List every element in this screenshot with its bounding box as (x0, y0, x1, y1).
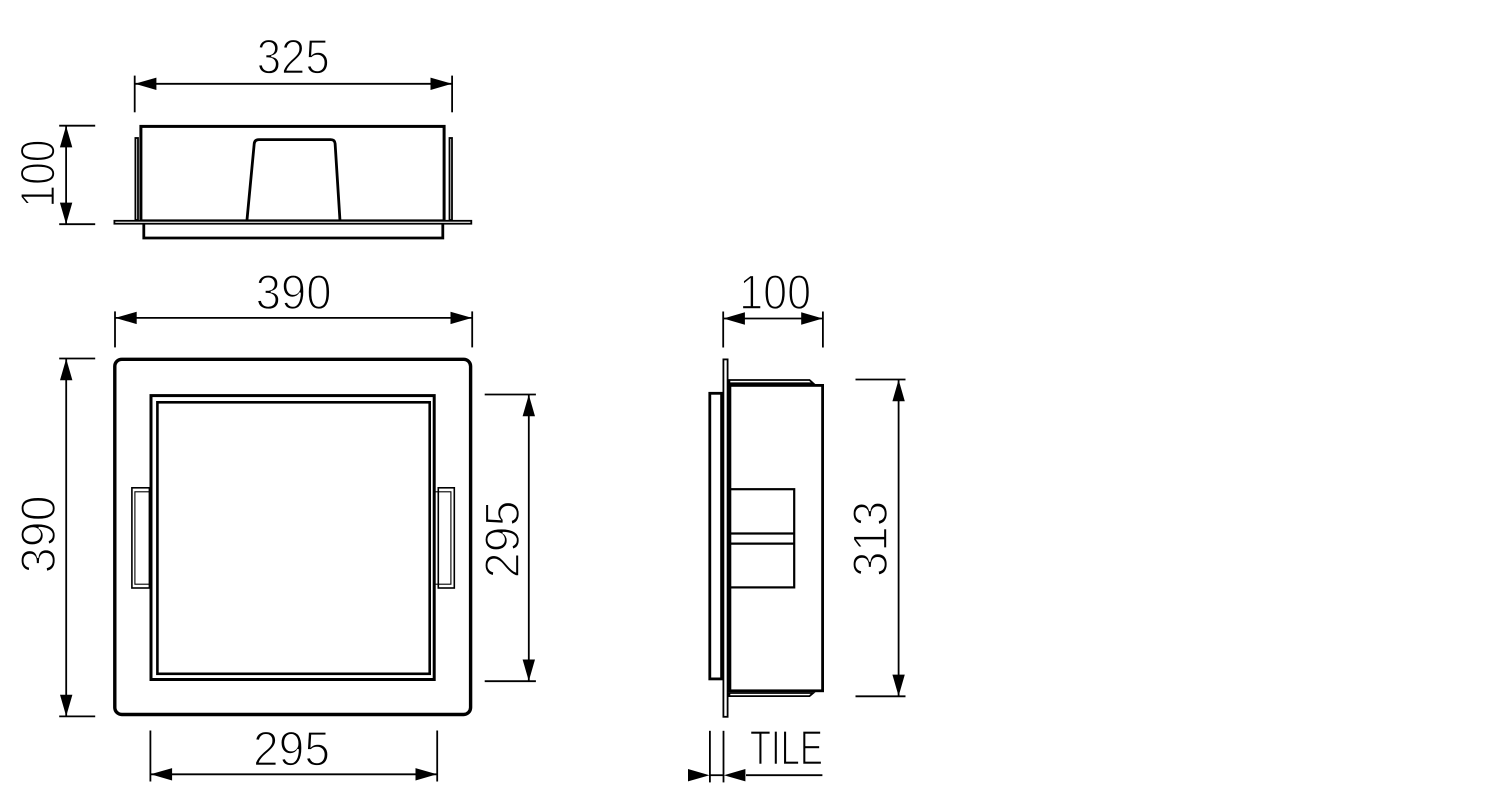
svg-text:100: 100 (11, 140, 65, 208)
svg-text:390: 390 (12, 495, 66, 573)
svg-text:390: 390 (256, 266, 332, 320)
svg-text:313: 313 (844, 501, 898, 577)
svg-text:TILE: TILE (750, 722, 823, 776)
svg-text:100: 100 (739, 266, 811, 320)
svg-text:325: 325 (257, 31, 330, 85)
svg-text:295: 295 (476, 500, 530, 578)
svg-text:295: 295 (253, 723, 330, 777)
